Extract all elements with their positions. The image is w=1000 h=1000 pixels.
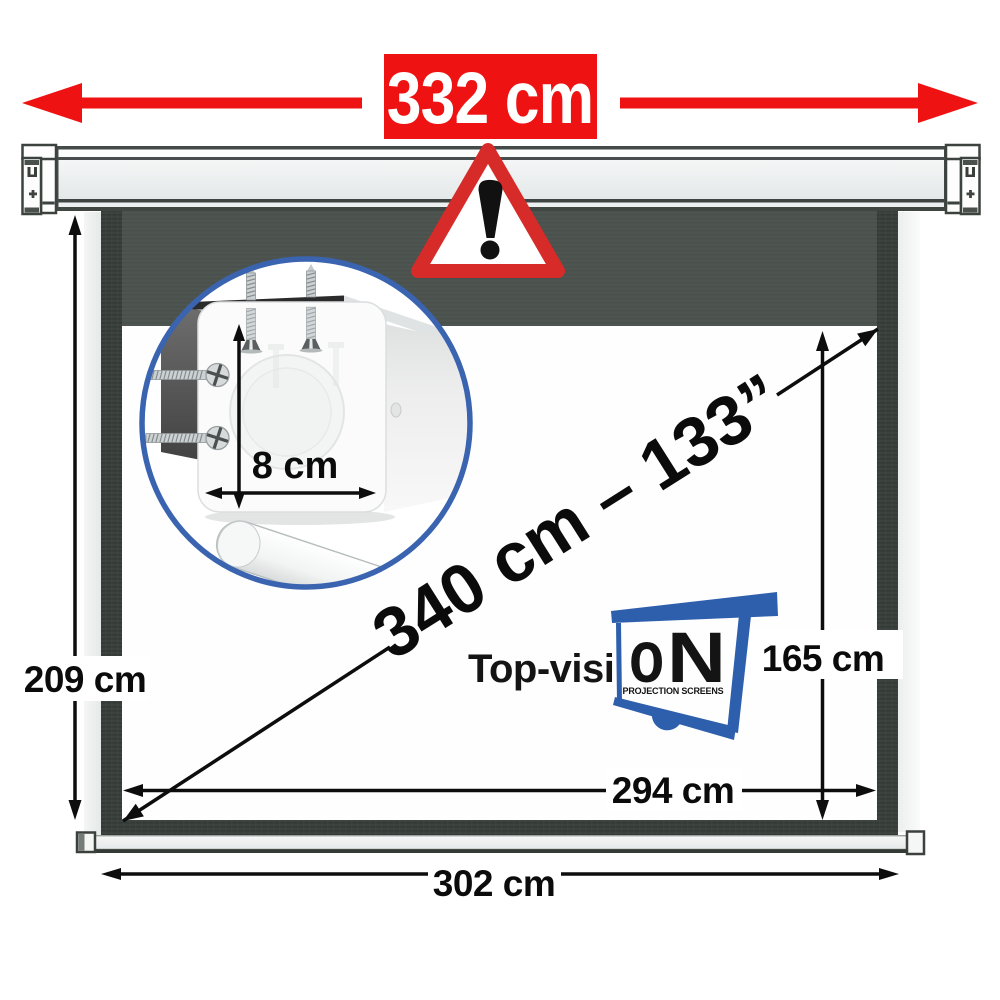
svg-text:209 cm: 209 cm (24, 659, 147, 700)
svg-text:165 cm: 165 cm (762, 638, 885, 679)
svg-text:294 cm: 294 cm (612, 770, 735, 811)
svg-text:8 cm: 8 cm (252, 445, 339, 487)
svg-text:332 cm: 332 cm (387, 59, 594, 140)
svg-text:PROJECTION SCREENS: PROJECTION SCREENS (623, 686, 724, 696)
svg-text:Top-visi: Top-visi (468, 647, 614, 691)
svg-text:302 cm: 302 cm (433, 863, 556, 904)
